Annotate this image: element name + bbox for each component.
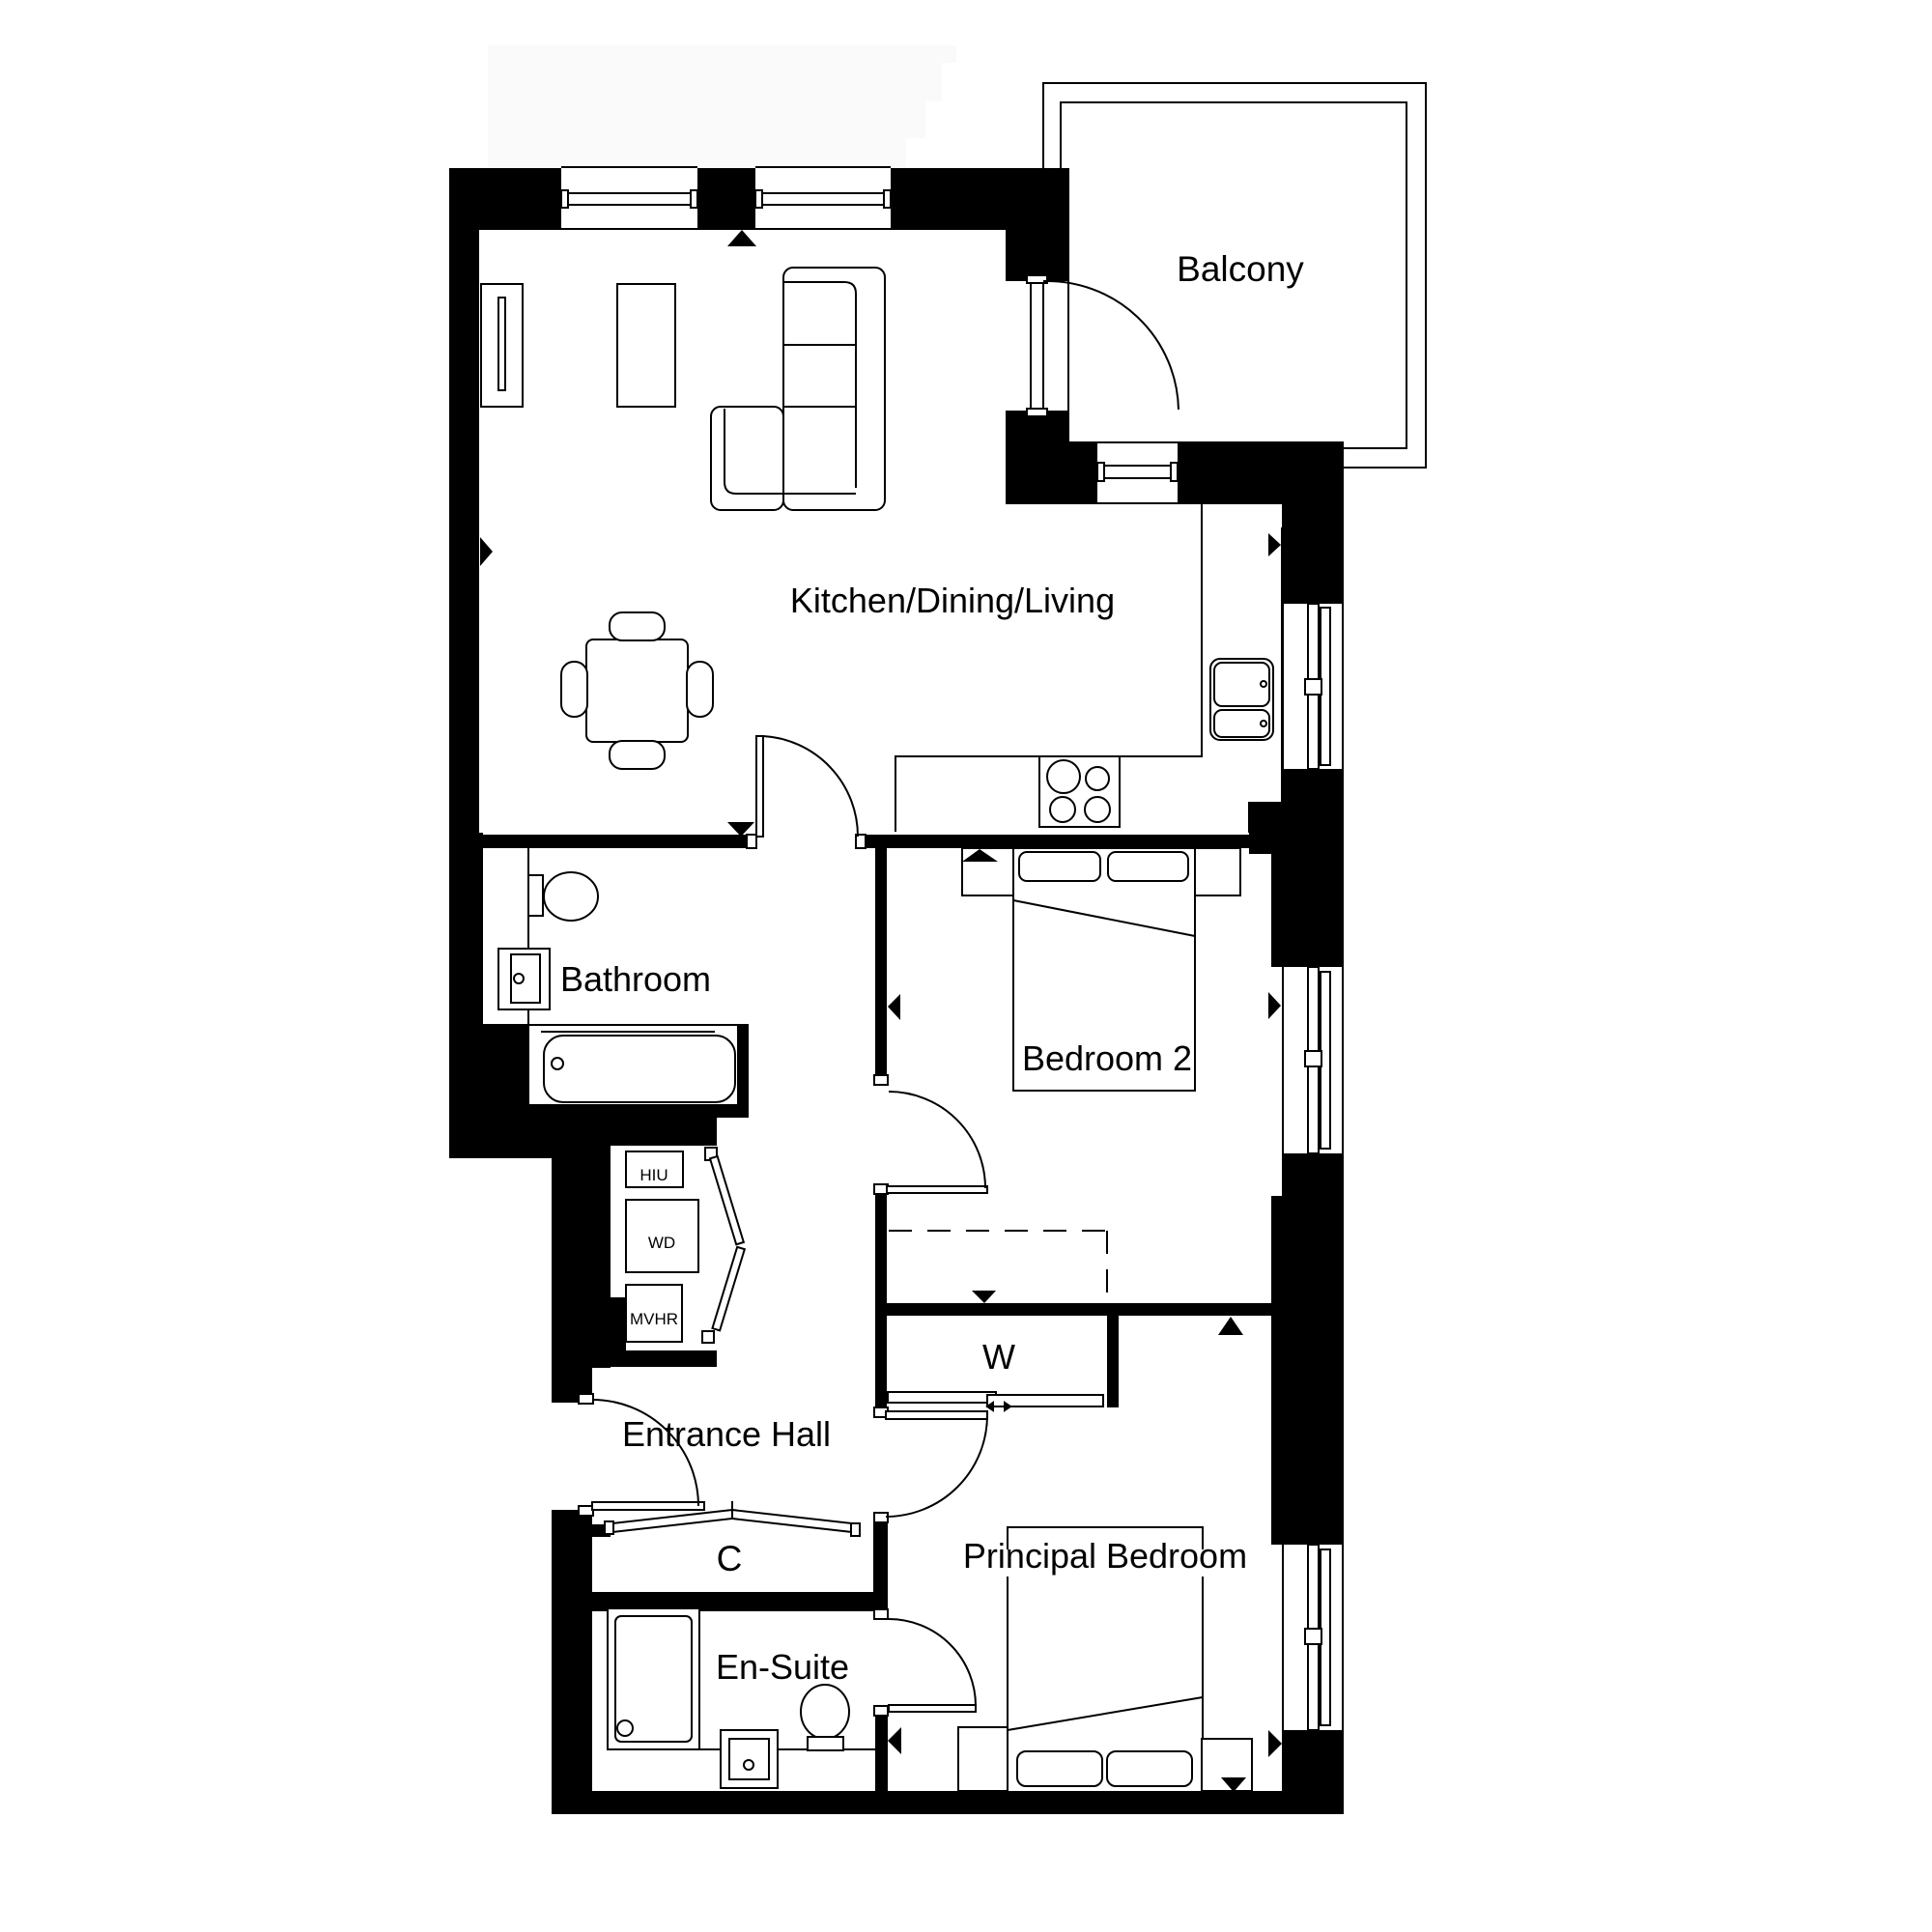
svg-text:Bedroom 2: Bedroom 2 — [1022, 1038, 1192, 1078]
svg-text:Principal Bedroom: Principal Bedroom — [963, 1536, 1247, 1576]
svg-text:C: C — [717, 1539, 743, 1578]
svg-text:Balcony: Balcony — [1177, 249, 1304, 289]
svg-text:Bathroom: Bathroom — [560, 959, 711, 999]
svg-text:Kitchen/Dining/Living: Kitchen/Dining/Living — [790, 581, 1115, 620]
svg-text:Entrance Hall: Entrance Hall — [622, 1414, 831, 1454]
svg-text:HIU: HIU — [639, 1166, 668, 1184]
svg-text:En-Suite: En-Suite — [716, 1647, 849, 1687]
svg-text:MVHR: MVHR — [630, 1310, 678, 1328]
svg-text:W: W — [982, 1337, 1015, 1377]
svg-text:WD: WD — [648, 1234, 675, 1252]
